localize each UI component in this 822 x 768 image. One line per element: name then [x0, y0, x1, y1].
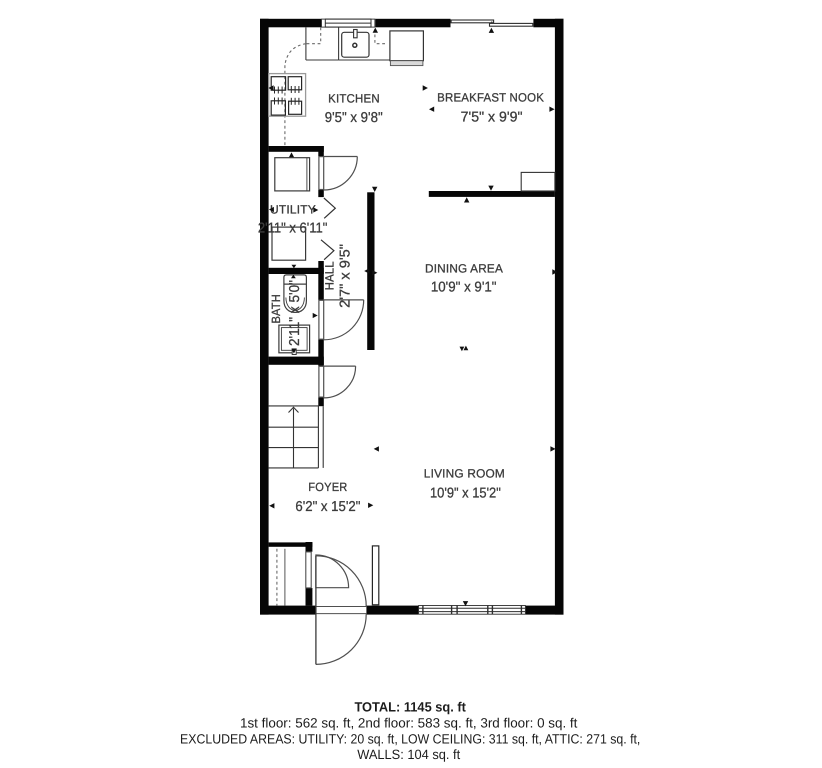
svg-text:2'11" x 6'11": 2'11" x 6'11": [258, 221, 328, 237]
svg-text:EXCLUDED AREAS: UTILITY: 20 sq: EXCLUDED AREAS: UTILITY: 20 sq. ft, LOW …: [180, 732, 640, 747]
svg-text:DINING AREA: DINING AREA: [425, 262, 503, 276]
svg-text:BATH: BATH: [269, 294, 283, 324]
svg-text:9'5" x 9'8": 9'5" x 9'8": [325, 110, 383, 126]
svg-text:BREAKFAST NOOK: BREAKFAST NOOK: [437, 91, 544, 105]
svg-text:10'9" x 9'1": 10'9" x 9'1": [431, 280, 497, 296]
svg-text:7'5" x 9'9": 7'5" x 9'9": [461, 110, 523, 126]
svg-text:2'11" x 5'0": 2'11" x 5'0": [287, 280, 303, 346]
svg-text:1st floor: 562 sq. ft, 2nd flo: 1st floor: 562 sq. ft, 2nd floor: 583 sq…: [240, 716, 578, 731]
svg-text:2'7" x 9'5": 2'7" x 9'5": [337, 244, 353, 308]
svg-text:TOTAL: 1145 sq. ft: TOTAL: 1145 sq. ft: [354, 700, 466, 715]
svg-text:FOYER: FOYER: [308, 480, 347, 494]
svg-text:6'2" x 15'2": 6'2" x 15'2": [295, 499, 360, 515]
svg-text:10'9" x 15'2": 10'9" x 15'2": [430, 486, 501, 502]
svg-text:UTILITY: UTILITY: [270, 203, 316, 217]
svg-text:KITCHEN: KITCHEN: [328, 92, 380, 106]
svg-text:WALLS: 104 sq. ft: WALLS: 104 sq. ft: [357, 747, 460, 762]
svg-text:LIVING ROOM: LIVING ROOM: [424, 467, 505, 481]
svg-text:HALL: HALL: [322, 261, 336, 290]
